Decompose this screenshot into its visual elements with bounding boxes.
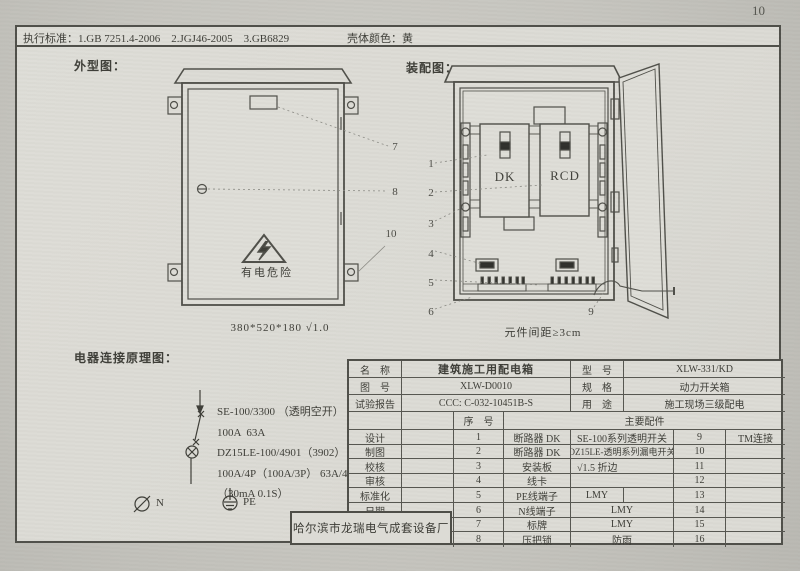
schematic-section-title: 电器连接原理图： (74, 349, 178, 366)
spacing-caption: 元件间距≥3cm (473, 324, 613, 340)
callout-6: 6 (423, 305, 439, 319)
part-name-cell: N线端子 (504, 503, 571, 518)
part-name-cell: 断路器 DK (504, 430, 571, 445)
callout-2: 2 (423, 186, 439, 200)
part-spec-cell: LMY (571, 488, 624, 503)
assembly-roof (445, 66, 622, 82)
blank-cell (349, 412, 402, 430)
sign-label-cell: 制图 (349, 445, 402, 459)
n-label: N (156, 497, 164, 509)
drawing-no-label-cell: 图 号 (349, 378, 402, 395)
part-no-cell: 4 (454, 474, 504, 488)
part-no-cell: 5 (454, 488, 504, 503)
sign-label-cell: 审核 (349, 474, 402, 488)
part-no-cell: 1 (454, 430, 504, 445)
scanned-drawing-page: { "page_number": "10", "header": { "stan… (0, 0, 800, 571)
callout-5: 5 (423, 276, 439, 290)
cabinet-front-view-drawing (102, 62, 412, 337)
part-extra-cell (726, 474, 785, 488)
part-spec-cell: SE-100系列透明开关 (571, 430, 674, 445)
name-label-cell: 名 称 (349, 361, 402, 378)
part-extra-cell (726, 459, 785, 474)
part-name-cell: 安装板 (504, 459, 571, 474)
part-extra-cell (726, 518, 785, 532)
cabinet-assembly-drawing (402, 60, 702, 345)
part-name-cell: PE线端子 (504, 488, 571, 503)
sign-label-cell: 设计 (349, 430, 402, 445)
seq-header-cell: 序 号 (454, 412, 504, 430)
execution-standards-text: 执行标准：1.GB 7251.4-2006 2.JGJ46-2005 3.GB6… (23, 30, 289, 46)
name-value-cell: 建筑施工用配电箱 (402, 361, 571, 378)
page-number: 10 (752, 3, 765, 19)
part-extra-cell (726, 532, 785, 547)
outline-leader-10 (358, 246, 385, 272)
part-extra-cell (726, 445, 785, 459)
callout-4: 4 (423, 247, 439, 261)
part-no2-cell: 10 (674, 445, 726, 459)
pe-label: PE (243, 496, 256, 508)
part-extra-cell (726, 503, 785, 518)
breaker-symbol-icon (193, 390, 204, 445)
part-spec-cell: 防雨 (571, 532, 674, 547)
company-name: 哈尔滨市龙瑞电气成套设备厂 (290, 511, 452, 545)
part-no2-cell: 13 (674, 488, 726, 503)
sign-value-cell (402, 474, 454, 488)
part-name-cell: 线卡 (504, 474, 571, 488)
part-no2-cell: 12 (674, 474, 726, 488)
use-label-cell: 用 途 (571, 395, 624, 412)
hazard-warning-text: 有电危险 (227, 264, 307, 280)
callout-9: 9 (583, 305, 599, 319)
callout-8: 8 (387, 185, 403, 199)
sign-value-cell (402, 488, 454, 503)
model-label-cell: 型 号 (571, 361, 624, 378)
part-no-cell: 3 (454, 459, 504, 474)
blank-cell (402, 412, 454, 430)
sign-label-cell: 标准化 (349, 488, 402, 503)
dk-module-label: DK (480, 169, 530, 185)
shell-color-text: 壳体颜色：黄 (347, 30, 413, 46)
part-spec-cell: LMY (571, 518, 674, 532)
part-spec-cell: LMY (571, 503, 674, 518)
part-no2-cell: 16 (674, 532, 726, 547)
sign-value-cell (402, 459, 454, 474)
part-no-cell: 2 (454, 445, 504, 459)
part-name-cell: 标牌 (504, 518, 571, 532)
dimension-caption: 380*520*180 √1.0 (205, 322, 355, 334)
cabinet-roof (175, 69, 351, 83)
callout-3: 3 (423, 217, 439, 231)
spec-label-cell: 规 格 (571, 378, 624, 395)
part-name-cell: 压把锁 (504, 532, 571, 547)
part-extra-cell: TM连接 (726, 430, 785, 445)
model-value-cell: XLW-331/KD (624, 361, 785, 378)
part-extra-cell (726, 488, 785, 503)
callout-7: 7 (387, 140, 403, 154)
part-spec-cell: DZ15LE-透明系列漏电开关 (571, 445, 674, 459)
drawing-sheet: 执行标准：1.GB 7251.4-2006 2.JGJ46-2005 3.GB6… (15, 25, 781, 543)
sign-value-cell (402, 445, 454, 459)
callout-10: 10 (383, 227, 399, 241)
callout-1: 1 (423, 157, 439, 171)
use-value-cell: 施工现场三级配电 (624, 395, 785, 412)
part-no-cell: 7 (454, 518, 504, 532)
rcd-module-label: RCD (540, 168, 590, 184)
part-no-cell: 8 (454, 532, 504, 547)
standards-header: 执行标准：1.GB 7251.4-2006 2.JGJ46-2005 3.GB6… (17, 27, 779, 47)
neutral-symbol-icon (134, 496, 150, 512)
sign-value-cell (402, 430, 454, 445)
test-report-label-cell: 试验报告 (349, 395, 402, 412)
part-no2-cell: 9 (674, 430, 726, 445)
part-spec-cell: √1.5 折边 (571, 459, 674, 474)
part-no2-cell: 11 (674, 459, 726, 474)
open-door (619, 64, 668, 318)
sign-label-cell: 校核 (349, 459, 402, 474)
parts-header-cell: 主要配件 (504, 412, 785, 430)
part-spec-sub-cell (624, 488, 674, 503)
part-name-cell: 断路器 DK (504, 445, 571, 459)
part-no-cell: 6 (454, 503, 504, 518)
part-spec-cell (571, 474, 674, 488)
part-no2-cell: 15 (674, 518, 726, 532)
part-no2-cell: 14 (674, 503, 726, 518)
spec-value-cell: 动力开关箱 (624, 378, 785, 395)
test-report-value-cell: CCC: C-032-10451B-S (402, 395, 571, 412)
leakage-breaker-symbol-icon (186, 446, 198, 484)
drawing-no-value-cell: XLW-D0010 (402, 378, 571, 395)
